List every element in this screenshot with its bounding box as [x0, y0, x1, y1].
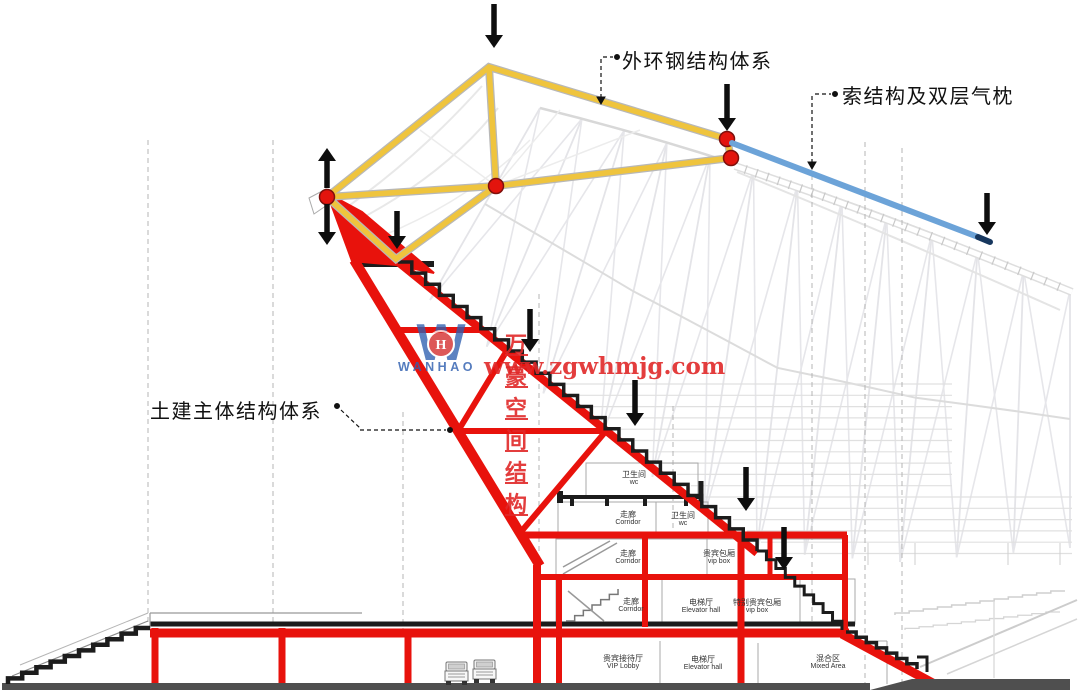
room-label-wc-upper: 卫生间wc: [586, 470, 682, 487]
stadium-section-diagram: W H WANHAO 万豪空间结构 www.zgwhmjg.com 外环钢结构体…: [0, 0, 1080, 690]
load-arrow-down-icon: [521, 309, 539, 352]
room-label-wc-3f: 卫生间wc: [635, 511, 731, 528]
load-arrow-down-icon: [978, 193, 996, 235]
room-label-special-vip-box: 特别贵宾包厢vip box: [709, 598, 805, 615]
load-arrow-down-icon: [626, 380, 644, 426]
load-arrow-down-icon: [718, 84, 736, 131]
outer-ring-label: 外环钢结构体系: [622, 45, 773, 74]
load-arrow-down-icon: [388, 211, 406, 249]
room-label-corridor-2f: 走廊Corridor: [580, 549, 676, 566]
civil-label: 土建主体结构体系: [150, 395, 322, 424]
cable-label: 索结构及双层气枕: [842, 80, 1014, 109]
load-arrow-up-icon: [318, 148, 336, 188]
room-label-vip-box-2f: 贵宾包厢vip box: [671, 549, 767, 566]
load-arrow-down-icon: [775, 527, 793, 570]
room-label-mixed-area: 混合区Mixed Area: [780, 654, 876, 671]
load-arrow-down-icon: [485, 4, 503, 48]
room-label-elevator-b1: 电梯厅Elevator hall: [655, 655, 751, 672]
load-arrow-down-icon: [318, 204, 336, 245]
load-arrow-down-icon: [737, 467, 755, 511]
